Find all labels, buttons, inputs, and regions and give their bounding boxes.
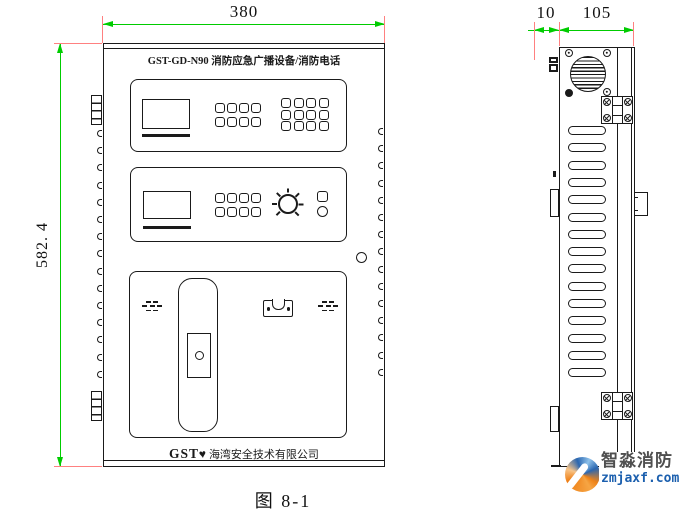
louver-slot xyxy=(568,143,606,152)
dimension-front-width: 380 xyxy=(103,2,385,22)
extension-line xyxy=(559,22,560,46)
edge-bump xyxy=(97,164,102,171)
dim-arrow xyxy=(57,43,63,53)
grille-row xyxy=(318,305,338,307)
screw xyxy=(565,49,573,57)
grille-row xyxy=(146,301,159,303)
louver-slot xyxy=(568,126,606,135)
grille-dash xyxy=(329,310,334,312)
keypad-button xyxy=(319,121,329,131)
hinge-screw xyxy=(603,98,611,106)
display-underline-1 xyxy=(142,134,190,137)
hinge-knuckle-line xyxy=(622,96,623,124)
hinge xyxy=(91,95,102,125)
edge-bump xyxy=(97,199,102,206)
hinge-screw xyxy=(603,394,611,402)
keypad-button xyxy=(251,193,261,203)
keypad-button xyxy=(319,98,329,108)
speaker-grille-left xyxy=(141,301,163,311)
hinge-knuckle-line xyxy=(622,392,623,420)
grille-dash xyxy=(326,305,331,307)
edge-bump xyxy=(97,336,102,343)
edge-bump xyxy=(378,352,383,359)
keypad-button xyxy=(294,98,304,108)
keypad-button xyxy=(215,193,225,203)
keypad-button xyxy=(306,98,316,108)
keypad-button xyxy=(227,117,237,127)
keypad-button xyxy=(251,207,261,217)
edge-bump xyxy=(378,180,383,187)
edge-bump xyxy=(378,248,383,255)
louver-slot xyxy=(568,282,606,291)
keypad-numeric xyxy=(281,98,329,131)
screw xyxy=(603,49,611,57)
louver-slot xyxy=(568,368,606,377)
display-screen-1 xyxy=(142,99,190,129)
edge-bump xyxy=(378,128,383,135)
edge-bump xyxy=(97,147,102,154)
edge-bump xyxy=(97,233,102,240)
cabinet-top-edge xyxy=(103,48,385,49)
panel2-round-button xyxy=(317,206,328,217)
hinge-knuckle-line xyxy=(612,411,623,412)
mount-bracket-mid xyxy=(550,189,559,217)
hinge-knuckle-line xyxy=(612,401,623,402)
brand-logo: GST xyxy=(169,446,199,461)
grille-dash xyxy=(153,310,158,312)
hinge-knuckle-line xyxy=(612,105,623,106)
edge-bump xyxy=(378,162,383,169)
grille-dash xyxy=(146,310,151,312)
grille-dash xyxy=(153,301,158,303)
louver-slot xyxy=(568,195,606,204)
grille-dash xyxy=(157,305,162,307)
dimension-line-front-width xyxy=(103,24,385,25)
grille-dash xyxy=(322,310,327,312)
hinge-knuckle-line xyxy=(612,392,613,420)
hinge-knuckle-line xyxy=(612,115,623,116)
keypad-button xyxy=(281,110,291,120)
door-latch-tab xyxy=(634,192,648,216)
hinge-knuckle-line xyxy=(612,96,613,124)
hinge xyxy=(91,391,102,421)
mount-tab xyxy=(549,64,558,72)
model-label: GST-GD-N90 消防应急广播设备/消防电话 xyxy=(103,53,385,68)
edge-bump xyxy=(97,130,102,137)
hinge-screw xyxy=(624,410,632,418)
grille-row xyxy=(322,301,335,303)
edge-bump xyxy=(378,197,383,204)
edge-bump xyxy=(97,319,102,326)
edge-bump xyxy=(378,231,383,238)
latch-step xyxy=(634,197,638,198)
speaker-grille-right xyxy=(317,301,339,311)
watermark-logo-icon xyxy=(565,457,600,492)
edge-bump xyxy=(97,216,102,223)
grille-dash xyxy=(146,301,151,303)
keypad-button xyxy=(319,110,329,120)
grille-dash xyxy=(318,305,323,307)
louver-slot xyxy=(568,264,606,273)
grille-dash xyxy=(142,305,147,307)
keypad-button xyxy=(215,103,225,113)
mount-pin xyxy=(553,171,556,177)
louver-slot xyxy=(568,316,606,325)
keypad-function-2 xyxy=(215,193,261,217)
screw xyxy=(565,89,573,97)
extension-line xyxy=(633,22,634,46)
edge-bump xyxy=(378,369,383,376)
hinge-screw xyxy=(603,114,611,122)
edge-bump xyxy=(378,317,383,324)
hinge-screw xyxy=(603,410,611,418)
edge-bump xyxy=(97,285,102,292)
figure-caption: 图 8-1 xyxy=(233,487,333,513)
mount-tab xyxy=(549,57,558,63)
louver-slot xyxy=(568,161,606,170)
keypad-button xyxy=(306,110,316,120)
hinge-screw xyxy=(624,394,632,402)
louver-slot xyxy=(568,178,606,187)
dim-arrow xyxy=(534,27,544,33)
knob-tick xyxy=(299,203,304,205)
edge-bump xyxy=(378,266,383,273)
edge-bump xyxy=(378,145,383,152)
watermark-title: 智淼消防 xyxy=(601,453,679,470)
edge-bump xyxy=(97,182,102,189)
latch-step xyxy=(634,210,638,211)
keypad-button xyxy=(281,121,291,131)
watermark-text: 智淼消防 zmjaxf.com xyxy=(599,452,681,486)
edge-bump xyxy=(378,283,383,290)
grille-row xyxy=(146,310,159,312)
dimension-side-mount: 10 xyxy=(532,3,560,23)
panel2-square-button xyxy=(317,191,328,202)
keypad-button xyxy=(215,207,225,217)
dim-arrow xyxy=(103,21,113,27)
door-lock xyxy=(356,252,367,263)
grille-row xyxy=(322,310,335,312)
keypad-function-1 xyxy=(215,103,261,127)
hinge-screw xyxy=(624,98,632,106)
extension-line xyxy=(54,43,102,44)
company-name: 海湾安全技术有限公司 xyxy=(209,449,319,461)
hook-screw xyxy=(287,307,291,311)
extension-line xyxy=(54,466,102,467)
keypad-button xyxy=(251,117,261,127)
keypad-button xyxy=(227,193,237,203)
technical-drawing: 380 582. 4 10 105 GST-GD-N90 消防应急广播设备/消防… xyxy=(0,0,700,519)
watermark-site: zmjaxf.com xyxy=(601,472,679,485)
dim-arrow xyxy=(549,27,559,33)
display-screen-2 xyxy=(143,191,191,219)
grille-row xyxy=(142,305,162,307)
knob-tick xyxy=(287,188,289,193)
bottom-flange xyxy=(551,465,561,467)
cradle-button xyxy=(195,351,204,360)
keypad-button xyxy=(239,207,249,217)
extension-line xyxy=(102,16,103,43)
keypad-button xyxy=(294,110,304,120)
louver-slot xyxy=(568,351,606,360)
dimension-side-depth: 105 xyxy=(560,3,634,23)
screw xyxy=(603,88,611,96)
keypad-button xyxy=(251,103,261,113)
edge-bump xyxy=(378,300,383,307)
side-speaker xyxy=(570,56,606,92)
keypad-button xyxy=(239,103,249,113)
extension-line xyxy=(534,22,535,60)
grille-dash xyxy=(322,301,327,303)
keypad-button xyxy=(239,117,249,127)
phone-compartment xyxy=(129,271,347,438)
louver-slot xyxy=(568,247,606,256)
dim-arrow xyxy=(559,27,569,33)
keypad-button xyxy=(215,117,225,127)
brand-mark-icon: ♥ xyxy=(198,447,207,463)
hook-screw xyxy=(267,307,271,311)
keypad-button xyxy=(294,121,304,131)
edge-bump xyxy=(97,354,102,361)
louver-slot xyxy=(568,230,606,239)
edge-bump xyxy=(97,371,102,378)
dimension-front-height: 582. 4 xyxy=(34,222,52,268)
louver-slot xyxy=(568,213,606,222)
knob-tick xyxy=(272,203,277,205)
grille-dash xyxy=(150,305,155,307)
grille-dash xyxy=(333,305,338,307)
hook-notch xyxy=(272,299,285,310)
display-underline-2 xyxy=(143,226,191,229)
grille-dash xyxy=(329,301,334,303)
mount-bracket-bottom xyxy=(550,406,559,432)
edge-bump xyxy=(378,334,383,341)
extension-line xyxy=(384,16,385,43)
louver-slot xyxy=(568,334,606,343)
edge-bump xyxy=(97,302,102,309)
keypad-button xyxy=(306,121,316,131)
keypad-button xyxy=(227,207,237,217)
edge-bump xyxy=(378,214,383,221)
keypad-button xyxy=(281,98,291,108)
louver-slot xyxy=(568,299,606,308)
hinge-screw xyxy=(624,114,632,122)
dimension-line-front-height xyxy=(60,43,61,467)
edge-bump xyxy=(97,268,102,275)
edge-bump xyxy=(97,250,102,257)
keypad-button xyxy=(239,193,249,203)
brand-row: GST♥ 海湾安全技术有限公司 xyxy=(103,446,385,462)
keypad-button xyxy=(227,103,237,113)
